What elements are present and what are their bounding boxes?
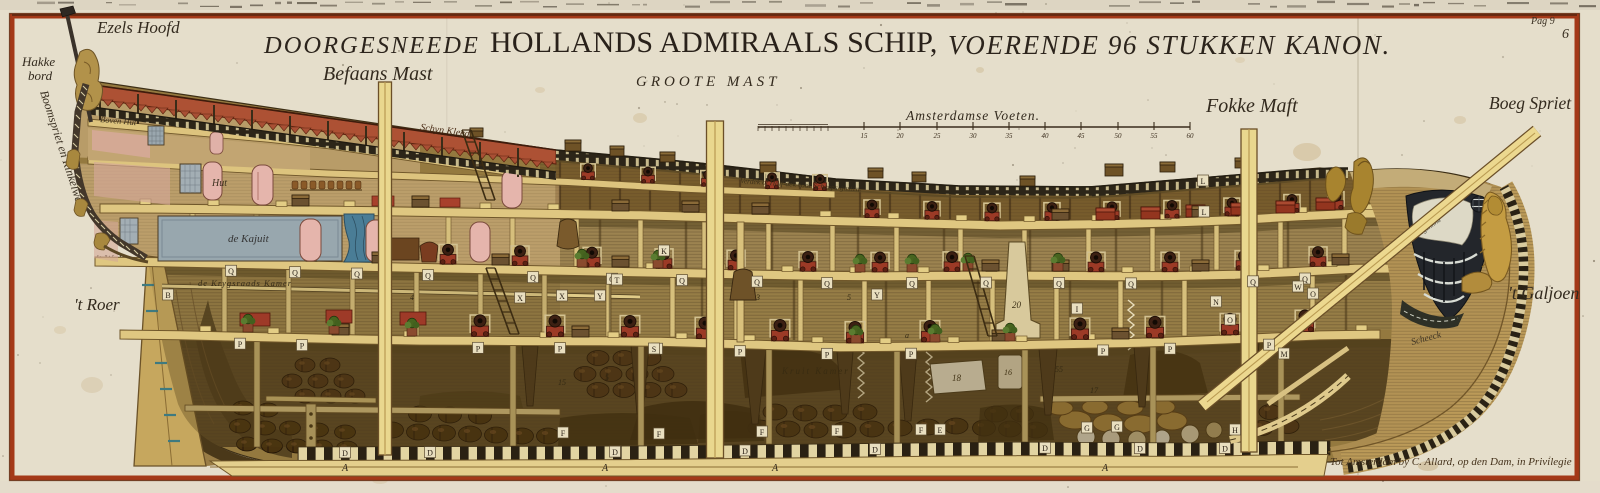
svg-text:Q: Q	[1128, 280, 1134, 289]
svg-text:30: 30	[969, 132, 978, 140]
svg-text:Q: Q	[292, 269, 298, 278]
svg-text:4: 4	[410, 293, 414, 302]
svg-text:T: T	[615, 276, 620, 285]
svg-text:D: D	[427, 449, 433, 458]
svg-text:O: O	[1227, 316, 1233, 325]
svg-text:5: 5	[847, 293, 851, 302]
svg-text:Fokke Maft: Fokke Maft	[1205, 95, 1298, 117]
svg-text:F: F	[760, 428, 765, 437]
svg-text:35: 35	[1005, 132, 1014, 140]
svg-text:Q: Q	[824, 280, 830, 289]
svg-text:L: L	[1201, 177, 1206, 186]
svg-text:A: A	[601, 463, 609, 474]
svg-text:5: 5	[605, 373, 609, 382]
svg-text:25: 25	[934, 132, 942, 140]
svg-text:Hut: Hut	[211, 178, 227, 189]
svg-text:D: D	[1042, 444, 1048, 453]
svg-text:Amsterdamse Voeten.: Amsterdamse Voeten.	[905, 108, 1040, 123]
svg-text:45: 45	[1078, 132, 1086, 140]
svg-text:H: H	[1232, 426, 1238, 435]
svg-text:Q: Q	[679, 277, 685, 286]
svg-text:M: M	[1280, 350, 1287, 359]
svg-text:P: P	[558, 345, 563, 354]
svg-text:VOERENDE 96 STUKKEN KANON.: VOERENDE 96 STUKKEN KANON.	[948, 30, 1391, 60]
svg-text:D: D	[742, 447, 748, 456]
svg-text:40: 40	[1042, 132, 1050, 140]
svg-text:S: S	[652, 345, 656, 354]
svg-text:P: P	[300, 342, 305, 351]
svg-text:G: G	[1114, 423, 1120, 432]
svg-text:60: 60	[1187, 132, 1195, 140]
svg-text:D: D	[612, 448, 618, 457]
svg-text:X: X	[559, 292, 565, 301]
svg-text:N: N	[1213, 298, 1219, 307]
svg-text:P: P	[476, 344, 481, 353]
svg-text:de Krygsraads Kamer: de Krygsraads Kamer	[198, 278, 292, 288]
svg-text:D: D	[1222, 444, 1228, 453]
svg-text:F: F	[657, 430, 662, 439]
svg-text:D: D	[1137, 445, 1143, 454]
svg-text:P: P	[1168, 345, 1173, 354]
svg-text:Q: Q	[909, 280, 915, 289]
svg-text:20: 20	[897, 132, 905, 140]
svg-text:a: a	[905, 331, 909, 340]
svg-text:O: O	[1310, 290, 1316, 299]
svg-text:Q: Q	[425, 272, 431, 281]
svg-text:Boeg Spriet: Boeg Spriet	[1489, 93, 1572, 113]
svg-text:F: F	[561, 429, 566, 438]
svg-text:G: G	[1084, 424, 1090, 433]
svg-text:DOORGESNEEDE: DOORGESNEEDE	[263, 32, 480, 59]
svg-text:Q: Q	[1056, 279, 1062, 288]
svg-text:6: 6	[1562, 27, 1569, 42]
svg-text:P: P	[825, 350, 830, 359]
svg-text:Q: Q	[1250, 278, 1256, 287]
svg-text:Q: Q	[228, 267, 234, 276]
svg-text:A: A	[341, 463, 349, 474]
svg-text:Ezels Hoofd: Ezels Hoofd	[96, 18, 180, 37]
svg-text:E: E	[938, 426, 943, 435]
svg-text:Tot Amsterdam by C. Allard, op: Tot Amsterdam by C. Allard, op den Dam, …	[1330, 456, 1572, 468]
svg-text:W: W	[1294, 283, 1302, 292]
svg-text:P: P	[738, 348, 743, 357]
svg-text:P: P	[1101, 347, 1106, 356]
svg-text:'t Galjoen: 't Galjoen	[1508, 283, 1579, 303]
svg-text:Q: Q	[983, 279, 989, 288]
svg-text:20: 20	[1012, 300, 1022, 310]
svg-text:bord: bord	[28, 68, 53, 83]
svg-text:55: 55	[1055, 365, 1063, 374]
svg-text:F: F	[835, 427, 840, 436]
svg-text:3: 3	[755, 293, 760, 302]
svg-text:F: F	[919, 426, 924, 435]
svg-text:I: I	[1076, 305, 1079, 314]
svg-text:P: P	[238, 340, 243, 349]
svg-text:Y: Y	[874, 291, 880, 300]
svg-text:X: X	[517, 294, 523, 303]
svg-text:17: 17	[1090, 386, 1099, 395]
svg-text:Q: Q	[530, 274, 536, 283]
svg-text:Q: Q	[754, 278, 760, 287]
svg-text:Pag 9: Pag 9	[1530, 16, 1555, 27]
svg-text:de Kajuit: de Kajuit	[228, 233, 270, 245]
svg-text:Y: Y	[597, 292, 603, 301]
svg-text:K: K	[661, 247, 667, 256]
svg-text:50: 50	[1115, 132, 1123, 140]
svg-text:'t Roer: 't Roer	[74, 295, 120, 314]
svg-text:Q: Q	[354, 270, 360, 279]
svg-text:B: B	[165, 291, 170, 300]
svg-text:A: A	[771, 463, 779, 474]
svg-text:15: 15	[861, 132, 869, 140]
svg-text:Hakke: Hakke	[21, 54, 55, 69]
svg-text:GROOTE MAST: GROOTE MAST	[636, 74, 780, 90]
svg-text:D: D	[342, 449, 348, 458]
svg-text:HOLLANDS ADMIRAALS SCHIP,: HOLLANDS ADMIRAALS SCHIP,	[490, 26, 938, 59]
svg-text:L: L	[1202, 208, 1207, 217]
svg-text:P: P	[1267, 341, 1272, 350]
svg-text:15: 15	[558, 378, 566, 387]
svg-text:D: D	[872, 445, 878, 454]
svg-text:A: A	[1101, 463, 1109, 474]
svg-text:P: P	[909, 350, 914, 359]
svg-text:55: 55	[1151, 132, 1159, 140]
